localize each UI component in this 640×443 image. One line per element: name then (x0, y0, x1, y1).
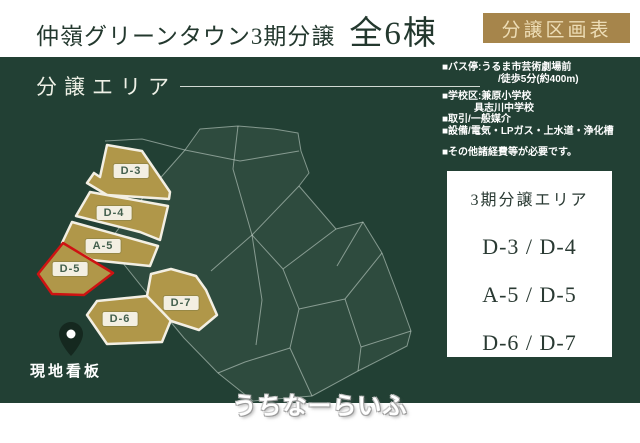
phase-lot-row: D-6 / D-7 (447, 332, 612, 354)
total-units-text: 全6棟 (349, 6, 438, 54)
lot-table-badge: 分譲区画表 (483, 13, 630, 43)
flyer-page: 仲嶺グリーンタウン3期分譲 全6棟 分譲区画表 分譲エリア ■バス停:うるま市芸… (0, 0, 640, 443)
header-bar: 仲嶺グリーンタウン3期分譲 全6棟 分譲区画表 (0, 0, 640, 57)
phase-lot-row: A-5 / D-5 (447, 284, 612, 306)
lot-label-a5: A-5 (86, 239, 121, 253)
lot-label-d7: D-7 (164, 296, 199, 310)
page-title-text: 仲嶺グリーンタウン3期分譲 (36, 17, 335, 51)
lot-label-d4: D-4 (97, 206, 132, 220)
site-sign-label: 現地看板 (30, 360, 102, 381)
lot-label-d5: D-5 (53, 262, 88, 276)
background-subdivision-outline (110, 126, 411, 401)
location-pin-icon (58, 321, 84, 359)
watermark: うちなーらいふ (233, 386, 408, 421)
lot-label-d3: D-3 (114, 164, 149, 178)
phase-lot-row: D-3 / D-4 (447, 236, 612, 258)
map-panel: 分譲エリア ■バス停:うるま市芸術劇場前 /徒歩5分(約400m) ■学校区:兼… (0, 57, 640, 403)
phase-lot-list-title: 3期分譲エリア (447, 186, 612, 210)
phase-lot-list-box: 3期分譲エリア D-3 / D-4 A-5 / D-5 D-6 / D-7 (447, 171, 612, 357)
page-title: 仲嶺グリーンタウン3期分譲 全6棟 (36, 6, 438, 54)
lot-label-d6: D-6 (103, 312, 138, 326)
